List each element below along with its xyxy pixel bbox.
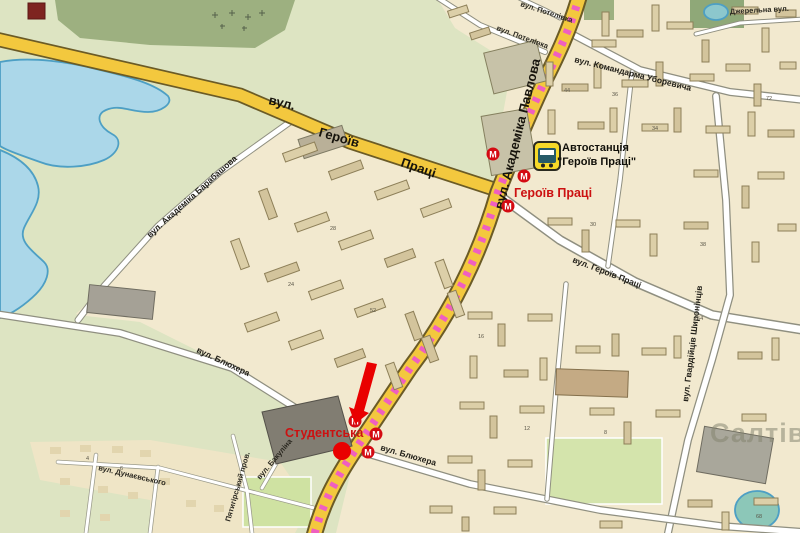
house-number: 68 xyxy=(756,514,762,520)
metro-icon-3: М xyxy=(502,200,515,213)
svg-text:М: М xyxy=(489,150,497,160)
pond-northeast xyxy=(704,4,728,20)
svg-text:М: М xyxy=(504,202,512,212)
svg-text:М: М xyxy=(520,172,528,182)
house-number: 8 xyxy=(604,430,607,436)
house-number: 44 xyxy=(564,88,570,94)
watermark-saltiv: Салтів xyxy=(710,418,800,448)
label-metro-heroiv-pratsi: Героїв Праці xyxy=(514,186,592,200)
pond-southeast xyxy=(735,491,779,529)
label-metro-studentska: Студентська xyxy=(285,426,364,440)
field-bottom-right xyxy=(546,438,662,504)
house-number: 4 xyxy=(86,456,89,462)
house-number: 52 xyxy=(370,308,376,314)
map-screenshot: вул. Героїв Праці вул. Академіка Павлова… xyxy=(0,0,800,533)
house-number: 16 xyxy=(478,334,484,340)
house-number: 36 xyxy=(612,92,618,98)
house-number: 24 xyxy=(288,282,294,288)
house-number: 254 xyxy=(694,316,703,322)
map-canvas[interactable]: вул. Героїв Праці вул. Академіка Павлова… xyxy=(0,0,800,533)
building-dark-red xyxy=(28,3,45,19)
house-number: 72 xyxy=(766,96,772,102)
bus-station-label-line2: "Героїв Праці" xyxy=(557,156,636,168)
building-tan-large xyxy=(556,369,629,397)
location-marker-disc xyxy=(333,442,351,460)
metro-icon-5: М xyxy=(370,428,383,441)
house-number: 30 xyxy=(590,222,596,228)
metro-icon-6: М xyxy=(362,446,375,459)
house-number: 12 xyxy=(524,426,530,432)
house-number: 34 xyxy=(652,126,658,132)
metro-icon-2: М xyxy=(518,170,531,183)
svg-text:М: М xyxy=(364,448,372,458)
house-number: 28 xyxy=(330,226,336,232)
field-bottom-middle xyxy=(243,477,311,527)
metro-icon-1: М xyxy=(487,148,500,161)
bus-station-label-line1: Автостанція xyxy=(562,142,629,154)
svg-text:М: М xyxy=(372,430,380,440)
house-number: 6 xyxy=(120,466,123,472)
house-number: 38 xyxy=(700,242,706,248)
